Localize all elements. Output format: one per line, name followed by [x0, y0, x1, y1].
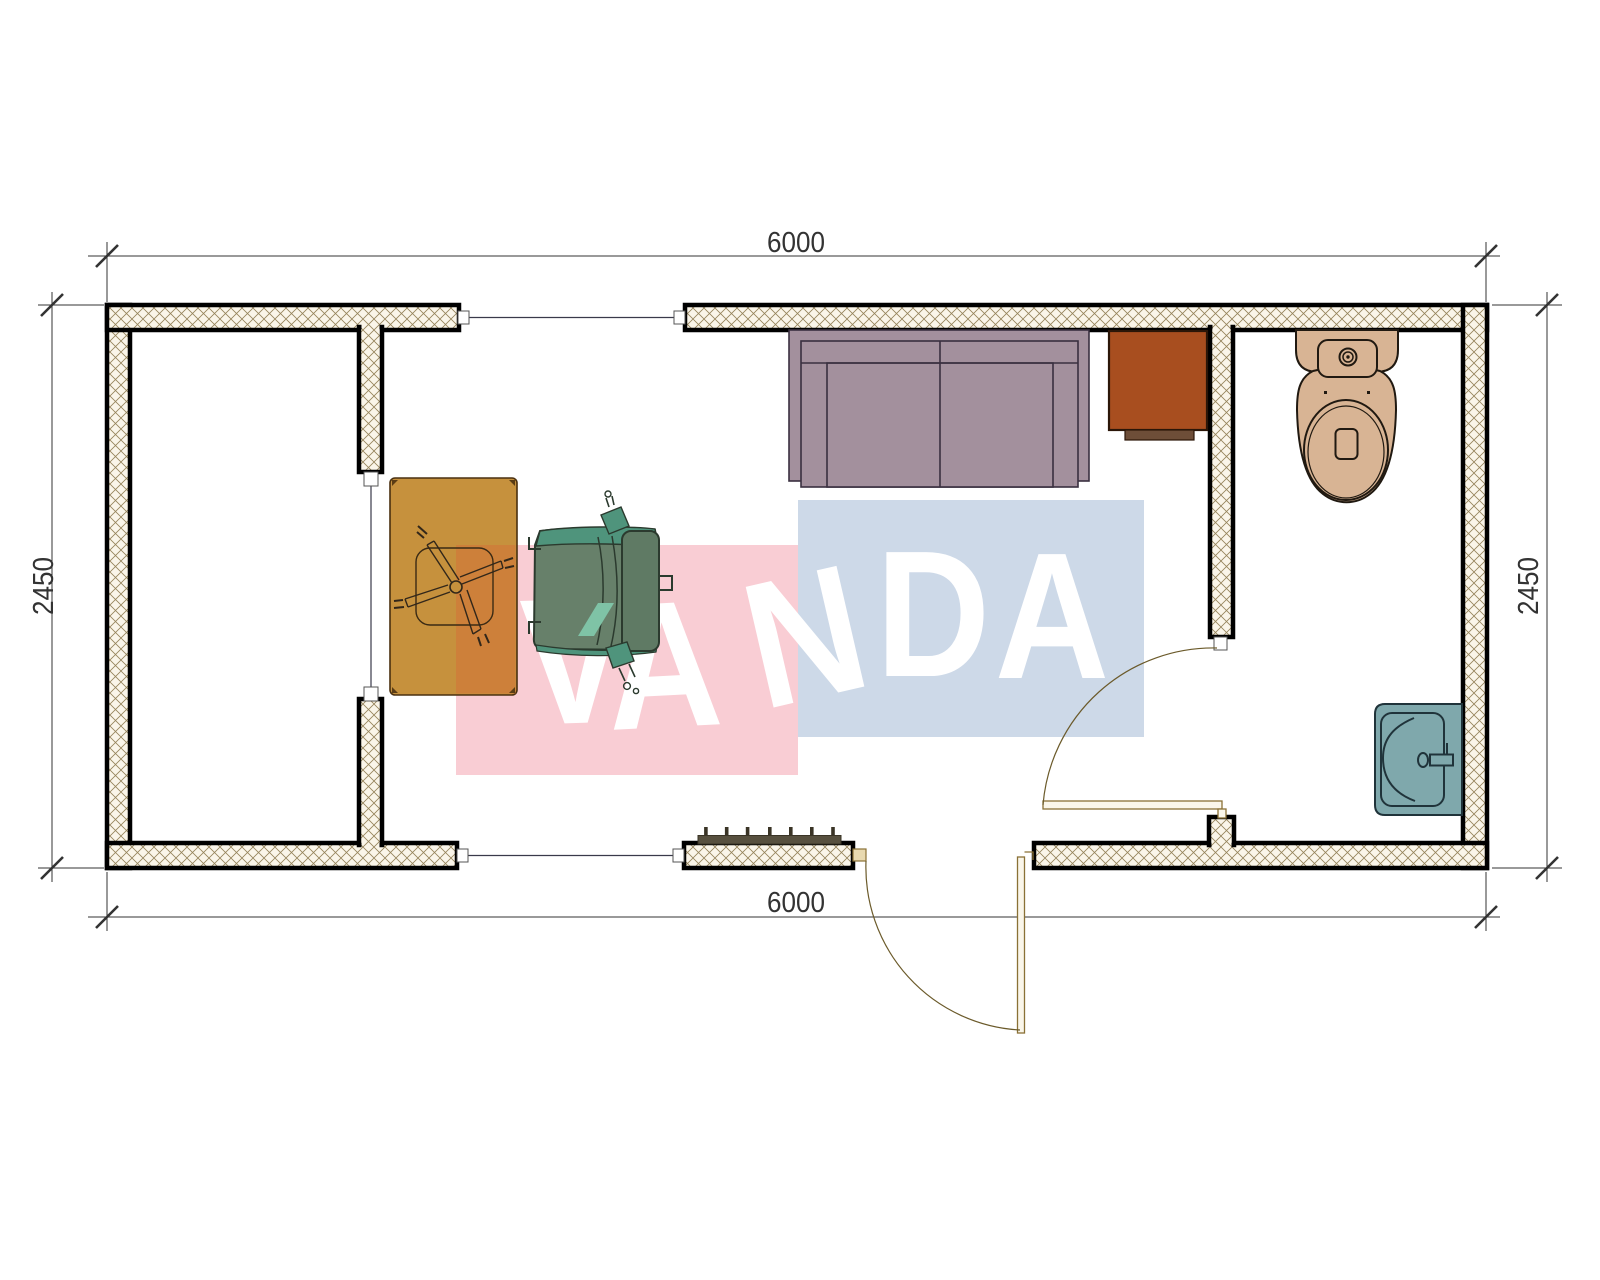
svg-text:A: A	[995, 516, 1109, 717]
svg-text:2450: 2450	[28, 557, 60, 615]
svg-text:D: D	[876, 514, 990, 715]
svg-text:6000: 6000	[767, 887, 825, 919]
svg-text:6000: 6000	[767, 227, 825, 259]
svg-text:2450: 2450	[1513, 557, 1545, 615]
